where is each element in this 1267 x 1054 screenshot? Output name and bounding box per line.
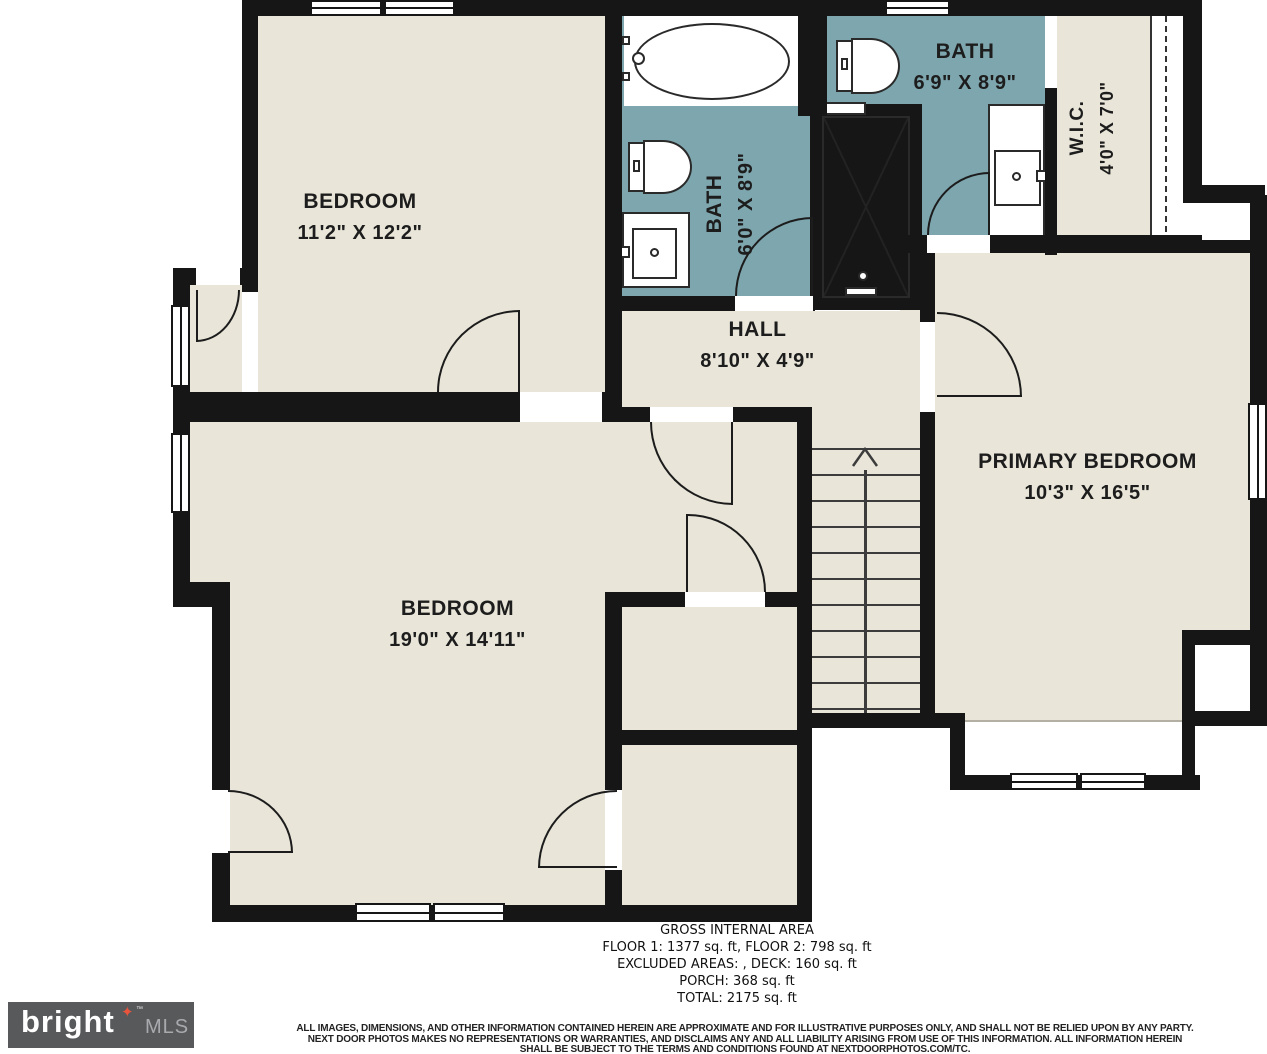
- shower-head-icon: [858, 271, 868, 281]
- room-dims: 10'3" X 16'5": [960, 481, 1215, 505]
- room-dims: 8'10" X 4'9": [650, 349, 865, 373]
- wall: [812, 713, 965, 728]
- stairs-up-arrow-icon: [849, 444, 881, 468]
- disclaimer-text: ALL IMAGES, DIMENSIONS, AND OTHER INFORM…: [260, 1024, 1230, 1054]
- room-dims: 6'9" X 8'9": [860, 71, 1070, 95]
- window: [355, 903, 431, 922]
- door-leaf: [518, 310, 520, 392]
- window: [433, 903, 505, 922]
- bay-window-alcove: [965, 720, 1182, 777]
- bright-mls-logo: bright ✦ ™ MLS: [8, 1002, 194, 1048]
- logo-star-icon: ✦: [121, 1003, 134, 1021]
- shower-drain: [845, 287, 877, 296]
- room-dims: 4'0" X 7'0": [1095, 53, 1119, 203]
- bathtub-faucet-icon: [632, 52, 645, 65]
- logo-mls-text: MLS: [145, 1016, 189, 1039]
- label-bedroom-topleft: BEDROOM 11'2" X 12'2": [250, 190, 470, 245]
- wall: [950, 713, 965, 775]
- wall: [1195, 240, 1257, 253]
- wall: [242, 0, 258, 292]
- room-dims: 19'0" X 14'11": [340, 628, 575, 652]
- door-opening: [927, 235, 990, 253]
- window: [885, 0, 950, 16]
- door-opening: [650, 407, 733, 422]
- door-opening: [920, 322, 935, 412]
- window: [171, 433, 190, 513]
- label-wic: W.I.C. 4'0" X 7'0": [1066, 53, 1118, 203]
- exterior-notch: [1195, 645, 1250, 711]
- area-line: TOTAL: 2175 sq. ft: [437, 990, 1037, 1007]
- door-leaf: [538, 866, 617, 868]
- label-bedroom-bottomleft: BEDROOM 19'0" X 14'11": [340, 597, 575, 652]
- area-line: EXCLUDED AREAS: , DECK: 160 sq. ft: [437, 956, 1037, 973]
- disclaimer-line: SHALL BE SUBJECT TO THE TERMS AND CONDIT…: [260, 1045, 1230, 1054]
- wall: [173, 582, 230, 607]
- area-line: PORCH: 368 sq. ft: [437, 973, 1037, 990]
- wall: [212, 905, 812, 922]
- room-opening: [242, 292, 258, 392]
- logo-trademark: ™: [136, 1006, 143, 1013]
- wall: [1183, 0, 1202, 190]
- window: [310, 0, 382, 16]
- door-leaf: [228, 851, 293, 853]
- door-opening: [735, 296, 813, 311]
- label-hall: HALL 8'10" X 4'9": [650, 318, 865, 373]
- window: [171, 305, 190, 387]
- wall: [605, 0, 622, 422]
- stair-rail: [864, 470, 867, 713]
- sink-faucet-icon: [1012, 172, 1021, 181]
- shower-door: [824, 102, 866, 115]
- wall: [798, 16, 827, 116]
- area-title: GROSS INTERNAL AREA: [437, 922, 1037, 939]
- closet1-floor: [622, 607, 797, 730]
- door-opening: [685, 592, 765, 607]
- room-name: BEDROOM: [250, 190, 470, 214]
- window: [1080, 773, 1146, 790]
- floor-plan-page: BEDROOM 11'2" X 12'2" BATH 6'0" X 8'9" B…: [0, 0, 1267, 1054]
- disclaimer-line: ALL IMAGES, DIMENSIONS, AND OTHER INFORM…: [260, 1024, 1230, 1035]
- closet-rod-dashed-line: [1165, 16, 1167, 242]
- toilet-handle: [841, 58, 848, 70]
- bathtub-knob-icon: [622, 36, 630, 45]
- room-name: BATH: [703, 119, 727, 289]
- wall: [1182, 711, 1195, 775]
- logo-brand-text: bright: [21, 1004, 115, 1040]
- wall: [1045, 88, 1057, 255]
- wall: [622, 730, 812, 745]
- label-bath1: BATH 6'0" X 8'9": [703, 119, 759, 289]
- door-leaf: [196, 290, 198, 342]
- toilet-handle: [633, 160, 640, 172]
- wall: [1182, 630, 1250, 645]
- closet2-floor: [622, 745, 797, 905]
- door-leaf: [686, 514, 688, 592]
- door-leaf: [811, 217, 813, 296]
- label-bath2: BATH 6'9" X 8'9": [860, 40, 1070, 95]
- door-leaf: [937, 395, 1022, 397]
- bedroom-bottomleft-floor-ext: [190, 422, 232, 584]
- room-name: W.I.C.: [1066, 53, 1090, 203]
- sink-faucet-icon: [650, 248, 659, 257]
- room-name: PRIMARY BEDROOM: [960, 450, 1215, 474]
- bathtub-icon: [634, 23, 790, 100]
- wall: [797, 407, 812, 922]
- room-dims: 11'2" X 12'2": [250, 221, 470, 245]
- door-leaf: [731, 422, 733, 505]
- gross-internal-area-block: GROSS INTERNAL AREA FLOOR 1: 1377 sq. ft…: [437, 922, 1037, 1007]
- room-name: BEDROOM: [340, 597, 575, 621]
- door-opening: [520, 392, 602, 422]
- label-primary-bedroom: PRIMARY BEDROOM 10'3" X 16'5": [960, 450, 1215, 505]
- door-opening: [196, 268, 240, 285]
- wall: [212, 582, 230, 922]
- area-line: FLOOR 1: 1377 sq. ft, FLOOR 2: 798 sq. f…: [437, 939, 1037, 956]
- window: [384, 0, 455, 16]
- shower-icon: [822, 116, 910, 298]
- bathtub-knob-icon: [622, 72, 630, 81]
- room-dims: 6'0" X 8'9": [734, 119, 758, 289]
- room-name: HALL: [650, 318, 865, 342]
- window: [1010, 773, 1078, 790]
- room-name: BATH: [860, 40, 1070, 64]
- window: [1248, 403, 1267, 500]
- closet-shelf-line: [1150, 16, 1152, 242]
- door-leaf: [988, 172, 990, 235]
